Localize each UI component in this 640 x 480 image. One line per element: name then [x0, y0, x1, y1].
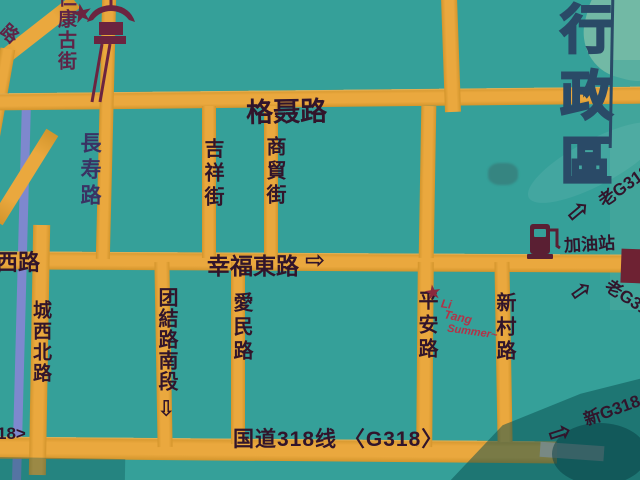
fuel-pump-icon: [527, 220, 563, 262]
road-label-changshou: 長寿路: [74, 132, 104, 210]
tuanjie-down-arrow-icon: ⇩: [157, 396, 175, 422]
road-label-west-partial: 西路: [0, 245, 40, 277]
map-shadow-bottomleft: [0, 457, 125, 480]
old-g318-mid-label: 老G318: [601, 272, 640, 325]
road-label-xingfu: 幸福東路: [207, 247, 299, 281]
new-g318-label: 新G318: [579, 387, 640, 431]
g318-partial-label: 18>: [0, 424, 26, 444]
road-label-genie: 格聂路: [246, 89, 328, 129]
road-north-of-genie: [441, 0, 461, 112]
road-label-shangmao: 商貿街: [260, 136, 289, 208]
map-shadow-bottomright: [448, 378, 640, 480]
map-smudge: [488, 163, 518, 185]
road-label-g318: 国道318线 〈G318〉: [233, 423, 443, 453]
gas-station-label: 加油站: [563, 229, 615, 257]
road-label-jixiang: 吉祥街: [198, 138, 227, 210]
road-chengxibei-connector: [0, 129, 58, 225]
river-line: [12, 98, 31, 480]
road-label-xincun: 新村路: [490, 292, 519, 364]
road-pingan-upper: [419, 106, 437, 258]
road-label-aimin: 愛民路: [227, 292, 256, 364]
landmark-label: 仁康古街: [52, 0, 79, 72]
xingfu-right-arrow-icon: ⇨: [305, 246, 325, 275]
road-label-chengxibei: 城西北路: [27, 300, 54, 384]
road-label-tuanjie: 团結路南段: [152, 287, 181, 392]
district-panel-label: 行政區: [544, 2, 619, 200]
hand-drawn-map: ★ 仁康古街 路 格聂路 幸福東路 ⇨ 国道318线 〈G318〉 長寿路 吉祥…: [0, 0, 640, 480]
old-g318-mid-arrow-icon: ⇨: [563, 272, 599, 310]
